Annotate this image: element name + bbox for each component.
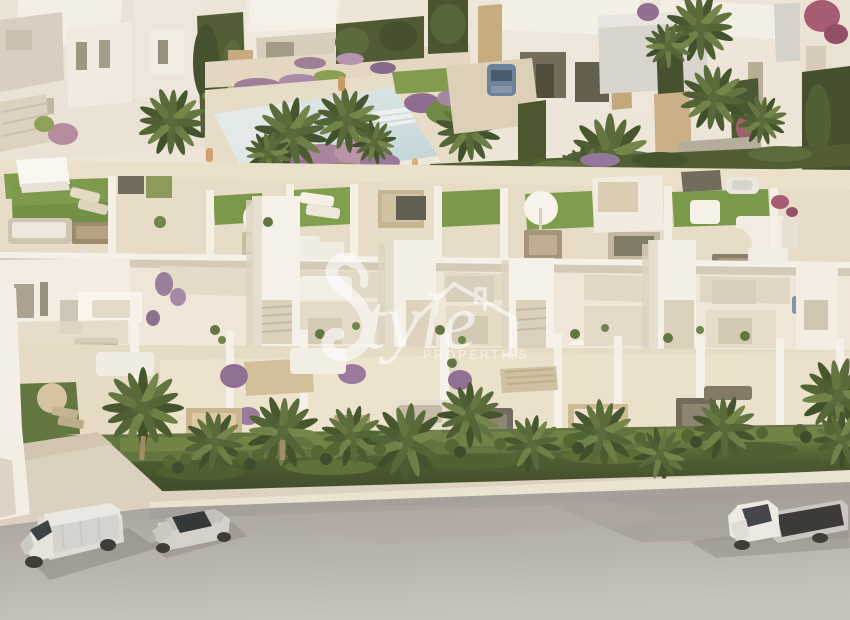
- svg-text:PROPERTIES: PROPERTIES: [423, 348, 529, 362]
